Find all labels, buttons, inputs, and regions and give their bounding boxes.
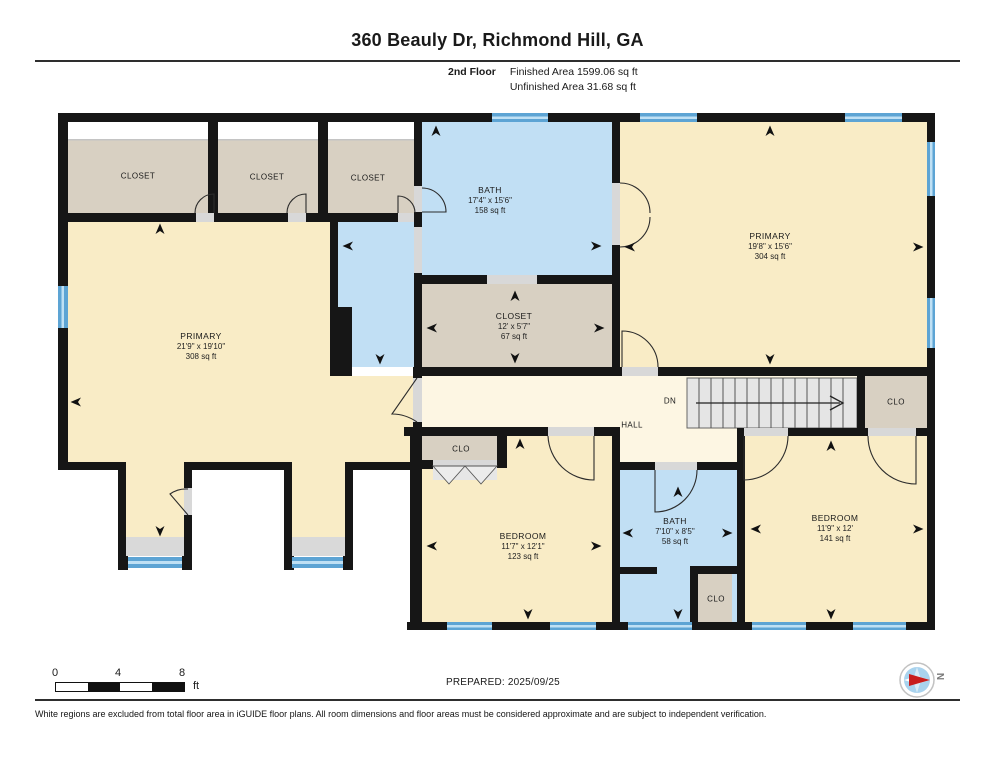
disclaimer-text: White regions are excluded from total fl… (35, 709, 766, 719)
compass-icon (898, 661, 936, 699)
room-label-bath-bottom: BATH 7'10" x 8'5" 58 sq ft (655, 516, 694, 548)
scale-tick-0: 0 (52, 667, 58, 679)
room-label-closet-2: CLOSET (250, 173, 284, 182)
room-label-closet-3: CLOSET (351, 174, 385, 183)
room-label-hall: HALL (621, 421, 643, 430)
stairs-down-label: DN (664, 397, 676, 406)
room-label-closet-mid: CLOSET 12' x 5'7" 67 sq ft (496, 311, 532, 343)
scale-bar: 0 4 8 ft (55, 667, 255, 693)
scale-bar-segments (55, 682, 185, 692)
room-label-clo-left: CLO (452, 445, 470, 454)
room-label-clo-bath: CLO (707, 595, 725, 604)
footer-divider (35, 699, 960, 701)
room-label-primary-right: PRIMARY 19'8" x 15'6" 304 sq ft (748, 231, 792, 263)
scale-tick-4: 4 (115, 667, 121, 679)
room-label-primary-left: PRIMARY 21'9" x 19'10" 308 sq ft (177, 331, 225, 363)
room-label-clo-right: CLO (887, 398, 905, 407)
prepared-date: PREPARED: 2025/09/25 (446, 677, 560, 688)
room-label-bedroom-mid: BEDROOM 11'7" x 12'1" 123 sq ft (500, 531, 547, 563)
room-label-bath-top: BATH 17'4" x 15'6" 158 sq ft (468, 185, 512, 217)
compass-north-label: N (934, 673, 945, 680)
stairs (687, 378, 857, 428)
floorplan-page: 360 Beauly Dr, Richmond Hill, GA 2nd Flo… (0, 0, 995, 768)
room-label-bedroom-right: BEDROOM 11'9" x 12' 141 sq ft (812, 513, 859, 545)
scale-tick-8: 8 (179, 667, 185, 679)
scale-unit: ft (193, 680, 199, 692)
room-label-closet-1: CLOSET (121, 172, 155, 181)
floorplan-canvas (0, 0, 995, 768)
